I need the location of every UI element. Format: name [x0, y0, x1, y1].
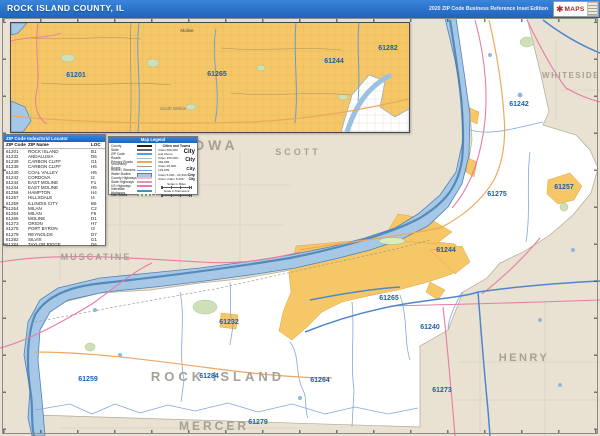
zip-label: 61232 — [219, 319, 239, 326]
water-bodies-swatch — [137, 173, 152, 176]
urban-inset-map: 61201 61265 61244 61282 Moline South Mol… — [10, 22, 410, 133]
zip-label: 61273 — [432, 387, 452, 394]
roads-swatch — [137, 157, 152, 160]
zip-label: 61242 — [509, 101, 529, 108]
zip-line-swatch — [137, 153, 152, 156]
brand-logo: ✱ MAPS — [553, 1, 599, 17]
table-row: 61284TAYLOR RIDGED6 — [4, 242, 105, 247]
grid-loc-cell: D6 — [91, 242, 105, 247]
zip-code-cell: 61284 — [6, 242, 28, 247]
logo-mini-panel — [587, 2, 598, 16]
zip-label: 61282 — [378, 45, 398, 52]
city-sample: City — [186, 166, 195, 171]
city-sample: City — [189, 177, 195, 181]
zip-label: 61264 — [310, 377, 330, 384]
county-line-swatch — [137, 145, 152, 148]
interstate-swatch — [137, 189, 152, 192]
rivers-swatch — [137, 169, 152, 172]
county-label: WHITESIDE — [542, 71, 600, 80]
zip-label: 61240 — [420, 324, 440, 331]
scale-miles: Scale in Miles — [158, 183, 195, 189]
scale-kilometers: Scale in Kilometers — [158, 190, 195, 196]
zip-label: 61244 — [324, 58, 344, 65]
us-hwy-swatch — [137, 185, 152, 188]
state-line-swatch — [137, 149, 152, 152]
city-label: South Moline — [160, 106, 187, 111]
zip-table-header: ZIP Code ZIP Name LOC — [4, 142, 105, 149]
title-bar: ROCK ISLAND COUNTY, IL 2020 ZIP Code Bus… — [0, 0, 600, 18]
city-class-row: Cities Under 5,000City — [158, 177, 195, 181]
zip-index-table: ZIP Code Index/Grid Locator ZIP Code ZIP… — [3, 134, 106, 246]
zip-name-cell: TAYLOR RIDGE — [28, 242, 91, 247]
county-label: SCOTT — [275, 147, 321, 157]
edition-label: 2020 ZIP Code Business Reference Inset E… — [429, 6, 548, 12]
legend-item: Rail Roads — [111, 193, 155, 197]
zip-label: 61259 — [78, 376, 98, 383]
primary-roads-swatch — [137, 161, 152, 164]
zip-label: 61275 — [487, 191, 507, 198]
secondary-roads-swatch — [137, 165, 152, 168]
zip-table-title: ZIP Code Index/Grid Locator — [4, 135, 105, 142]
col-zip-name: ZIP Name — [28, 142, 91, 148]
county-label: HENRY — [499, 352, 550, 364]
zip-label: 61244 — [436, 247, 456, 254]
river-island — [379, 238, 405, 245]
railroad-swatch — [137, 193, 152, 196]
county-label: MERCER — [179, 419, 249, 433]
map-page: IOWA SCOTT WHITESIDE MUSCATINE ROCK ISLA… — [0, 0, 600, 436]
city-sample: City — [184, 149, 195, 155]
inset-map-svg: 61201 61265 61244 61282 Moline South Mol… — [11, 23, 409, 132]
zip-label: 61265 — [207, 71, 227, 78]
city-sample: City — [185, 157, 195, 163]
legend-cities-panel: Cities and Towns Cities 500,000 and Abov… — [155, 143, 197, 197]
zip-label: 61201 — [66, 72, 86, 79]
scale-bar-km — [161, 194, 192, 197]
page-title: ROCK ISLAND COUNTY, IL — [7, 3, 124, 13]
zip-label: 61284 — [199, 373, 219, 380]
col-zip-code: ZIP Code — [6, 142, 28, 148]
map-legend: Map Legend County State ZIP Code Roads P… — [108, 136, 198, 195]
logo-burst-icon: ✱ — [556, 5, 564, 14]
col-loc: LOC — [91, 142, 105, 148]
zip-label: 61257 — [554, 184, 574, 191]
zip-label: 61279 — [248, 419, 268, 426]
county-hwy-swatch — [137, 177, 152, 180]
city-class-row: Cities 150,000 - 499,999City — [158, 156, 195, 164]
state-hwy-swatch — [137, 181, 152, 184]
city-label: Moline — [180, 28, 194, 33]
zip-label: 61265 — [379, 295, 399, 302]
city-class-row: Cities 500,000 and AboveCity — [158, 148, 195, 156]
city-class-row: Cities 25,000 - 149,999City — [158, 164, 195, 172]
logo-brand-text: MAPS — [565, 6, 585, 13]
county-label: MUSCATINE — [61, 252, 132, 262]
legend-line-symbols: County State ZIP Code Roads Primary Road… — [109, 143, 155, 197]
